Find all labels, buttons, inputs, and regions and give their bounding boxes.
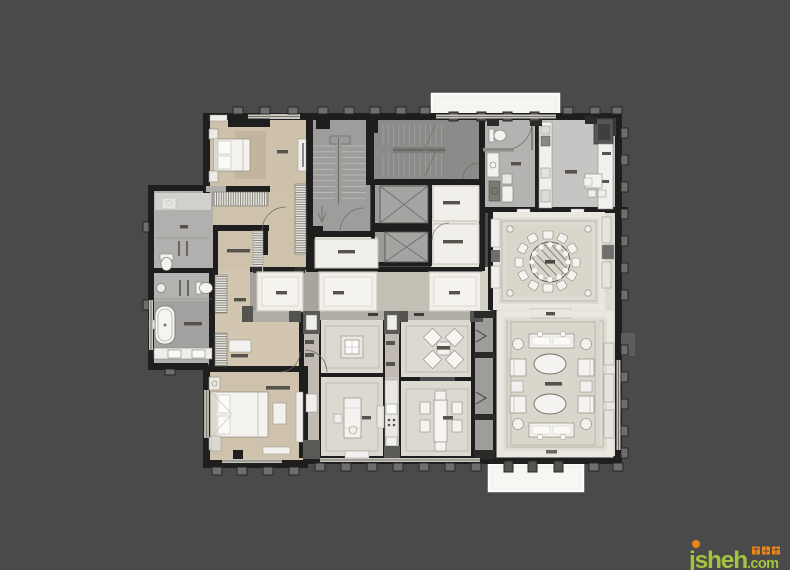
svg-text:jsheh: jsheh (688, 547, 747, 570)
svg-text:.com: .com (747, 556, 778, 570)
